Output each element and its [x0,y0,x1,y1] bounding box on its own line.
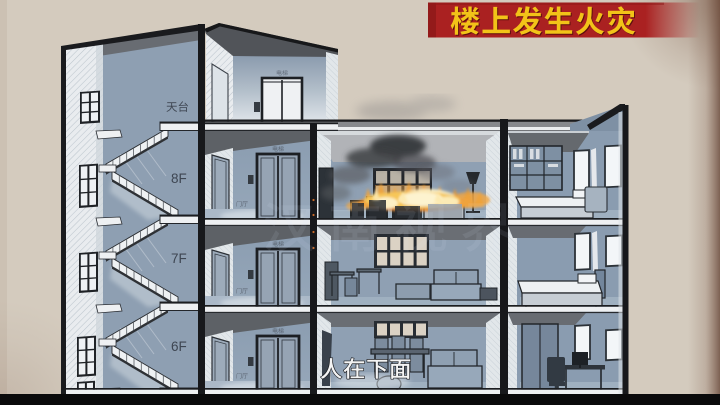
svg-text:8F: 8F [171,171,187,186]
svg-text:6F: 6F [171,339,187,354]
svg-text:7F: 7F [171,251,187,266]
